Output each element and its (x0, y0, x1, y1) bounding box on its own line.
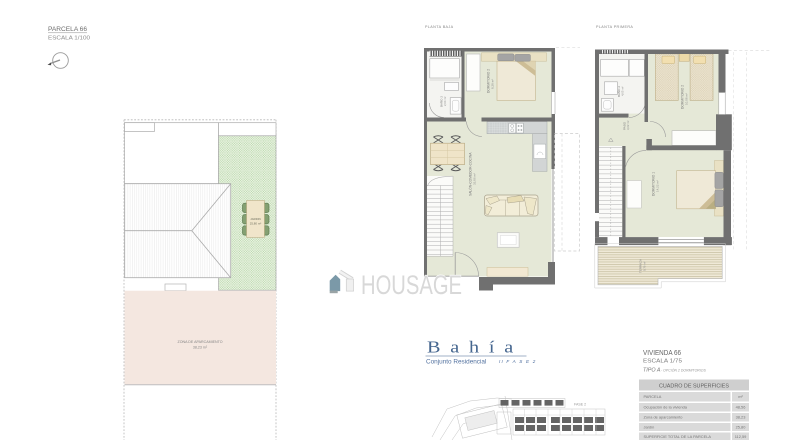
svg-text:3,62 m²: 3,62 m² (626, 120, 630, 130)
svg-text:48,56: 48,56 (736, 405, 746, 410)
svg-text:ESCALA 1/100: ESCALA 1/100 (48, 36, 90, 42)
svg-text:4,05 m²: 4,05 m² (621, 86, 625, 96)
svg-text:38,23: 38,23 (736, 415, 746, 420)
svg-text:Ocupación de la vivienda: Ocupación de la vivienda (644, 405, 688, 410)
svg-text:9,76 m²: 9,76 m² (643, 261, 647, 271)
svg-text:14,22 m²: 14,22 m² (656, 180, 660, 192)
svg-text:Conjunto Residencial: Conjunto Residencial (426, 359, 486, 366)
svg-text:25,80 m²: 25,80 m² (250, 221, 261, 225)
svg-text:TIPO A: TIPO A (643, 368, 661, 374)
svg-text:Zona de aparcamiento: Zona de aparcamiento (644, 415, 683, 420)
svg-text:PARCELA: PARCELA (644, 394, 662, 399)
svg-text:10,08 m²: 10,08 m² (685, 93, 689, 105)
svg-text:ESCALA 1/75: ESCALA 1/75 (643, 359, 682, 365)
svg-text:II F A S E 2: II F A S E 2 (499, 359, 536, 364)
svg-text:Jardín: Jardín (644, 425, 655, 430)
svg-text:PLANTA BAJA: PLANTA BAJA (425, 25, 454, 29)
svg-text:HOUSAGE: HOUSAGE (361, 270, 462, 300)
svg-text:38,23 m²: 38,23 m² (193, 346, 208, 350)
svg-text:Bahía: Bahía (427, 338, 523, 357)
svg-text:33,86 m²: 33,86 m² (473, 173, 477, 185)
svg-text:SUPERFICIE TOTAL DE LA PARCELA: SUPERFICIE TOTAL DE LA PARCELA (644, 434, 712, 439)
svg-text:FASE 2: FASE 2 (574, 403, 586, 407)
svg-text:2,04 m²: 2,04 m² (443, 96, 447, 106)
svg-text:PARCELA 66: PARCELA 66 (48, 26, 87, 33)
svg-text:ZONA DE APARCAMIENTO: ZONA DE APARCAMIENTO (178, 340, 223, 344)
svg-text:m²: m² (738, 394, 743, 399)
svg-text:112,59: 112,59 (735, 434, 747, 439)
svg-text:CUADRO DE SUPERFICIES: CUADRO DE SUPERFICIES (659, 383, 729, 389)
svg-text:25,80: 25,80 (736, 425, 747, 430)
svg-text:8,28 m²: 8,28 m² (491, 79, 495, 89)
svg-text:- OPCIÓN 2 DORMITORIOS: - OPCIÓN 2 DORMITORIOS (661, 367, 707, 372)
svg-text:PLANTA PRIMERA: PLANTA PRIMERA (596, 25, 633, 29)
svg-text:VIVIENDA 66: VIVIENDA 66 (643, 350, 681, 357)
